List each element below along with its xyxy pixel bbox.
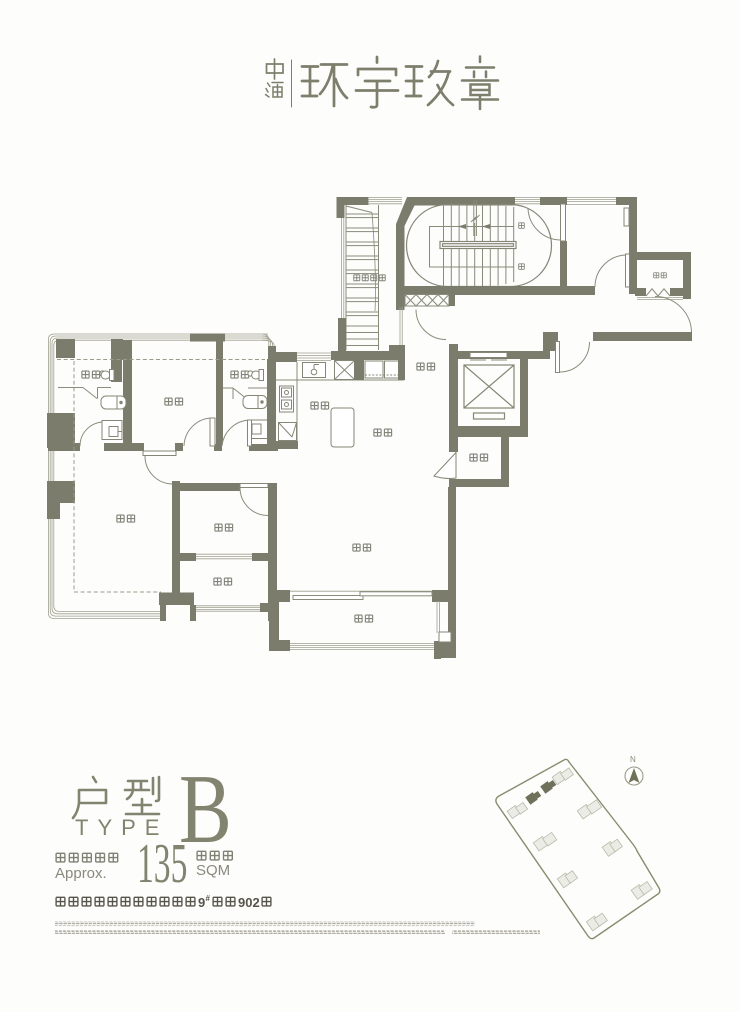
svg-text:902: 902 xyxy=(238,895,260,910)
svg-text:135: 135 xyxy=(137,832,187,894)
svg-text:Approx.: Approx. xyxy=(55,865,107,882)
svg-text:9: 9 xyxy=(198,895,205,910)
svg-text:N: N xyxy=(630,755,636,764)
svg-text:#: # xyxy=(206,894,211,903)
svg-text:SQM: SQM xyxy=(196,862,230,879)
